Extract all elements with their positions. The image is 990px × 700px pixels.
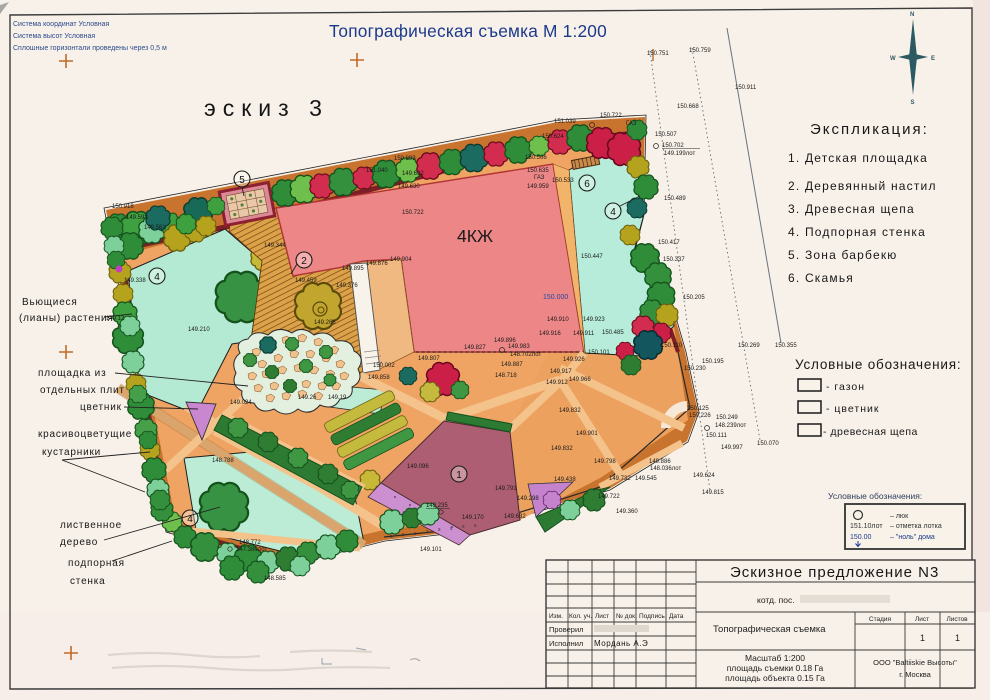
svg-text:Топографическая съемка: Топографическая съемка bbox=[713, 624, 826, 635]
svg-text:150.489: 150.489 bbox=[664, 196, 686, 202]
svg-text:150.195: 150.195 bbox=[702, 359, 724, 365]
svg-text:149.832: 149.832 bbox=[559, 408, 581, 414]
svg-text:149.101: 149.101 bbox=[420, 547, 442, 553]
svg-text:149.997: 149.997 bbox=[721, 445, 743, 451]
svg-text:Топографическая съемка М 1:200: Топографическая съемка М 1:200 bbox=[329, 21, 607, 41]
svg-text:150.624: 150.624 bbox=[542, 134, 564, 140]
svg-text:149.791: 149.791 bbox=[495, 486, 517, 492]
svg-text:Масштаб 1:200: Масштаб 1:200 bbox=[745, 653, 805, 663]
svg-text:Экспликация:: Экспликация: bbox=[810, 121, 929, 138]
svg-text:149.887: 149.887 bbox=[501, 362, 523, 368]
svg-text:149.170: 149.170 bbox=[462, 515, 484, 521]
svg-text:Дата: Дата bbox=[669, 613, 684, 620]
svg-text:149.593: 149.593 bbox=[126, 215, 148, 221]
svg-text:149.338: 149.338 bbox=[124, 278, 146, 284]
svg-text:1: 1 bbox=[456, 470, 462, 481]
svg-text:149.926: 149.926 bbox=[563, 357, 585, 363]
svg-text:ГАЗ: ГАЗ bbox=[534, 175, 545, 181]
svg-text:149.632: 149.632 bbox=[504, 514, 526, 520]
svg-text:149.911: 149.911 bbox=[573, 331, 595, 337]
svg-text:149.832: 149.832 bbox=[551, 446, 573, 452]
svg-text:149.722: 149.722 bbox=[598, 494, 620, 500]
svg-text:лиственное: лиственное bbox=[60, 520, 122, 531]
svg-text:Стадия: Стадия bbox=[869, 616, 892, 623]
svg-text:Исполнил: Исполнил bbox=[549, 639, 583, 648]
svg-text:- древесная щепа: - древесная щепа bbox=[823, 426, 918, 438]
svg-text:150.722: 150.722 bbox=[402, 210, 424, 216]
svg-text:150.702: 150.702 bbox=[662, 143, 684, 149]
svg-text:149.923: 149.923 bbox=[583, 317, 605, 323]
svg-text:150.566: 150.566 bbox=[525, 155, 547, 161]
svg-text:1. Детская площадка: 1. Детская площадка bbox=[788, 151, 928, 165]
svg-text:150.485: 150.485 bbox=[602, 330, 624, 336]
svg-text:148.702лот: 148.702лот bbox=[510, 352, 541, 358]
svg-text:котд. пос.: котд. пос. bbox=[757, 595, 795, 605]
svg-text:149.858: 149.858 bbox=[368, 375, 390, 381]
svg-text:1: 1 bbox=[955, 633, 960, 643]
svg-text:ООО "Baltiiskie Высоты": ООО "Baltiiskie Высоты" bbox=[873, 658, 957, 667]
svg-text:148.772: 148.772 bbox=[239, 540, 261, 546]
svg-text:4. Подпорная стенка: 4. Подпорная стенка bbox=[788, 225, 926, 239]
svg-text:Мордань А.Э: Мордань А.Э bbox=[594, 639, 648, 648]
svg-text:149.624: 149.624 bbox=[693, 473, 715, 479]
svg-text:кустарники: кустарники bbox=[42, 447, 101, 458]
svg-text:150.070: 150.070 bbox=[757, 441, 779, 447]
svg-text:151.040: 151.040 bbox=[366, 168, 388, 174]
svg-text:149.19: 149.19 bbox=[328, 395, 347, 401]
svg-text:150.759: 150.759 bbox=[689, 48, 711, 54]
svg-text:148.788: 148.788 bbox=[212, 458, 234, 464]
svg-text:150.751: 150.751 bbox=[647, 51, 669, 57]
svg-text:149.732: 149.732 bbox=[609, 476, 631, 482]
svg-text:150.00: 150.00 bbox=[850, 534, 872, 541]
svg-text:N: N bbox=[910, 12, 914, 18]
svg-text:красивоцветущие: красивоцветущие bbox=[38, 429, 132, 440]
svg-text:2: 2 bbox=[301, 256, 307, 267]
svg-text:150.125: 150.125 bbox=[687, 406, 709, 412]
svg-text:150.668: 150.668 bbox=[677, 104, 699, 110]
svg-text:150.111: 150.111 bbox=[706, 433, 727, 439]
svg-text:149.904: 149.904 bbox=[390, 257, 412, 263]
svg-text:4КЖ: 4КЖ bbox=[457, 226, 493, 246]
svg-text:150.000: 150.000 bbox=[543, 294, 568, 301]
svg-text:149.459: 149.459 bbox=[295, 278, 317, 284]
svg-text:– люк: – люк bbox=[890, 513, 909, 520]
svg-text:S: S bbox=[911, 100, 915, 106]
svg-text:149.344: 149.344 bbox=[264, 243, 286, 249]
svg-text:149.26: 149.26 bbox=[298, 395, 317, 401]
svg-text:149.807: 149.807 bbox=[418, 356, 440, 362]
svg-text:- газон: - газон bbox=[826, 381, 865, 393]
svg-text:150.002: 150.002 bbox=[373, 363, 395, 369]
svg-text:149.966: 149.966 bbox=[569, 377, 591, 383]
svg-text:Сплошные горизонтали проведены: Сплошные горизонтали проведены через 0,5… bbox=[13, 45, 167, 52]
svg-text:площадка из: площадка из bbox=[38, 368, 106, 379]
svg-text:дерево: дерево bbox=[60, 537, 98, 548]
svg-text:149.876: 149.876 bbox=[366, 261, 388, 267]
svg-text:150.230: 150.230 bbox=[684, 366, 706, 372]
svg-text:149.096: 149.096 bbox=[407, 464, 429, 470]
svg-text:150.447: 150.447 bbox=[581, 254, 603, 260]
svg-text:1: 1 bbox=[920, 633, 925, 643]
svg-text:149.268: 149.268 bbox=[314, 320, 336, 326]
svg-text:150.269: 150.269 bbox=[738, 343, 760, 349]
svg-text:148.585: 148.585 bbox=[264, 576, 286, 582]
svg-text:150.635: 150.635 bbox=[527, 168, 549, 174]
svg-text:149.630: 149.630 bbox=[398, 184, 420, 190]
svg-text:149.798: 149.798 bbox=[594, 459, 616, 465]
svg-text:4: 4 bbox=[154, 272, 160, 283]
svg-text:149.896: 149.896 bbox=[494, 338, 516, 344]
svg-text:ГАЗ: ГАЗ bbox=[626, 121, 637, 127]
svg-text:6: 6 bbox=[584, 179, 590, 190]
svg-text:Лист: Лист bbox=[915, 616, 929, 623]
svg-text:148.239лот: 148.239лот bbox=[715, 423, 746, 429]
svg-text:149.438: 149.438 bbox=[554, 477, 576, 483]
svg-text:г. Москва: г. Москва bbox=[899, 670, 931, 679]
svg-text:151.039: 151.039 bbox=[554, 119, 576, 125]
svg-text:149.916: 149.916 bbox=[539, 331, 561, 337]
svg-text:149.912: 149.912 bbox=[546, 380, 568, 386]
svg-text:№ док.: № док. bbox=[616, 613, 637, 620]
svg-text:149.815: 149.815 bbox=[702, 490, 724, 496]
svg-text:149.692: 149.692 bbox=[402, 171, 424, 177]
svg-text:149.895: 149.895 bbox=[342, 266, 364, 272]
svg-text:5: 5 bbox=[239, 175, 245, 186]
svg-text:149.959: 149.959 bbox=[527, 184, 549, 190]
svg-text:150.101: 150.101 bbox=[588, 350, 610, 356]
svg-text:W: W bbox=[890, 56, 896, 62]
svg-text:E: E bbox=[931, 56, 935, 62]
svg-text:– отметка лотка: – отметка лотка bbox=[890, 523, 942, 530]
svg-text:Эскизное предложение N3: Эскизное предложение N3 bbox=[730, 564, 939, 581]
svg-text:Лист: Лист bbox=[595, 613, 609, 620]
svg-text:4: 4 bbox=[610, 207, 616, 218]
svg-text:150.110: 150.110 bbox=[661, 343, 683, 349]
svg-text:149.561: 149.561 bbox=[144, 225, 166, 231]
svg-text:- цветник: - цветник bbox=[826, 403, 879, 415]
svg-text:Проверил: Проверил bbox=[549, 625, 584, 634]
svg-text:3. Древесная щепа: 3. Древесная щепа bbox=[788, 202, 915, 216]
svg-text:стенка: стенка bbox=[70, 576, 106, 587]
svg-text:149.298: 149.298 bbox=[517, 496, 539, 502]
svg-text:150.918: 150.918 bbox=[112, 204, 134, 210]
svg-text:148.718: 148.718 bbox=[495, 373, 517, 379]
svg-text:150.205: 150.205 bbox=[683, 295, 705, 301]
svg-text:149.827: 149.827 bbox=[464, 345, 486, 351]
svg-text:5. Зона барбекю: 5. Зона барбекю bbox=[788, 248, 898, 262]
svg-text:– "ноль" дома: – "ноль" дома bbox=[890, 534, 935, 541]
svg-text:149.199лот: 149.199лот bbox=[664, 151, 695, 157]
svg-text:149.024: 149.024 bbox=[230, 400, 252, 406]
svg-text:149.376: 149.376 bbox=[336, 283, 358, 289]
svg-text:Условные обозначения:: Условные обозначения: bbox=[795, 357, 961, 372]
svg-text:149.901: 149.901 bbox=[576, 431, 598, 437]
svg-text:150.533: 150.533 bbox=[552, 178, 574, 184]
svg-text:149.910: 149.910 bbox=[547, 317, 569, 323]
svg-text:Листов: Листов bbox=[946, 616, 968, 623]
svg-text:150.249: 150.249 bbox=[716, 415, 738, 421]
svg-text:150.893: 150.893 bbox=[394, 156, 416, 162]
svg-text:147.380лот: 147.380лот bbox=[236, 547, 267, 553]
svg-text:Кол. уч.: Кол. уч. bbox=[569, 613, 592, 620]
svg-text:150.417: 150.417 bbox=[658, 240, 680, 246]
svg-text:150.722: 150.722 bbox=[600, 113, 622, 119]
svg-text:2. Деревянный настил: 2. Деревянный настил bbox=[788, 179, 937, 193]
svg-text:площадь объекта 0.15 Га: площадь объекта 0.15 Га bbox=[725, 673, 825, 683]
svg-text:Вьющиеся: Вьющиеся bbox=[22, 297, 78, 308]
svg-text:150.911: 150.911 bbox=[735, 85, 757, 91]
svg-text:отдельных плит: отдельных плит bbox=[40, 385, 125, 396]
svg-text:150.507: 150.507 bbox=[655, 132, 677, 138]
svg-text:149.235: 149.235 bbox=[426, 503, 448, 509]
svg-text:150.337: 150.337 bbox=[663, 257, 685, 263]
svg-text:Условные обозначения:: Условные обозначения: bbox=[828, 491, 922, 501]
svg-text:149.210: 149.210 bbox=[188, 327, 210, 333]
svg-text:эскиз 3: эскиз 3 bbox=[204, 95, 329, 121]
svg-text:Подпись: Подпись bbox=[639, 613, 665, 620]
svg-text:Изм.: Изм. bbox=[549, 613, 563, 620]
svg-text:150.226: 150.226 bbox=[689, 413, 711, 419]
svg-text:150.355: 150.355 bbox=[775, 343, 797, 349]
svg-text:149.917: 149.917 bbox=[550, 369, 572, 375]
svg-text:148.036лот: 148.036лот bbox=[650, 466, 681, 472]
svg-text:149.360: 149.360 bbox=[616, 509, 638, 515]
svg-text:Система высот Условная: Система высот Условная bbox=[13, 33, 95, 40]
svg-text:Система координат Условная: Система координат Условная bbox=[13, 21, 110, 28]
svg-text:149.886: 149.886 bbox=[649, 459, 671, 465]
svg-text:(лианы) растения: (лианы) растения bbox=[19, 313, 114, 324]
svg-text:площадь съемки 0.18 Га: площадь съемки 0.18 Га bbox=[727, 663, 824, 673]
svg-text:149.545: 149.545 bbox=[635, 476, 657, 482]
svg-text:6. Скамья: 6. Скамья bbox=[788, 271, 854, 285]
svg-text:151.10лот: 151.10лот bbox=[850, 523, 883, 530]
svg-text:149.983: 149.983 bbox=[508, 344, 530, 350]
svg-text:цветник: цветник bbox=[80, 402, 122, 413]
